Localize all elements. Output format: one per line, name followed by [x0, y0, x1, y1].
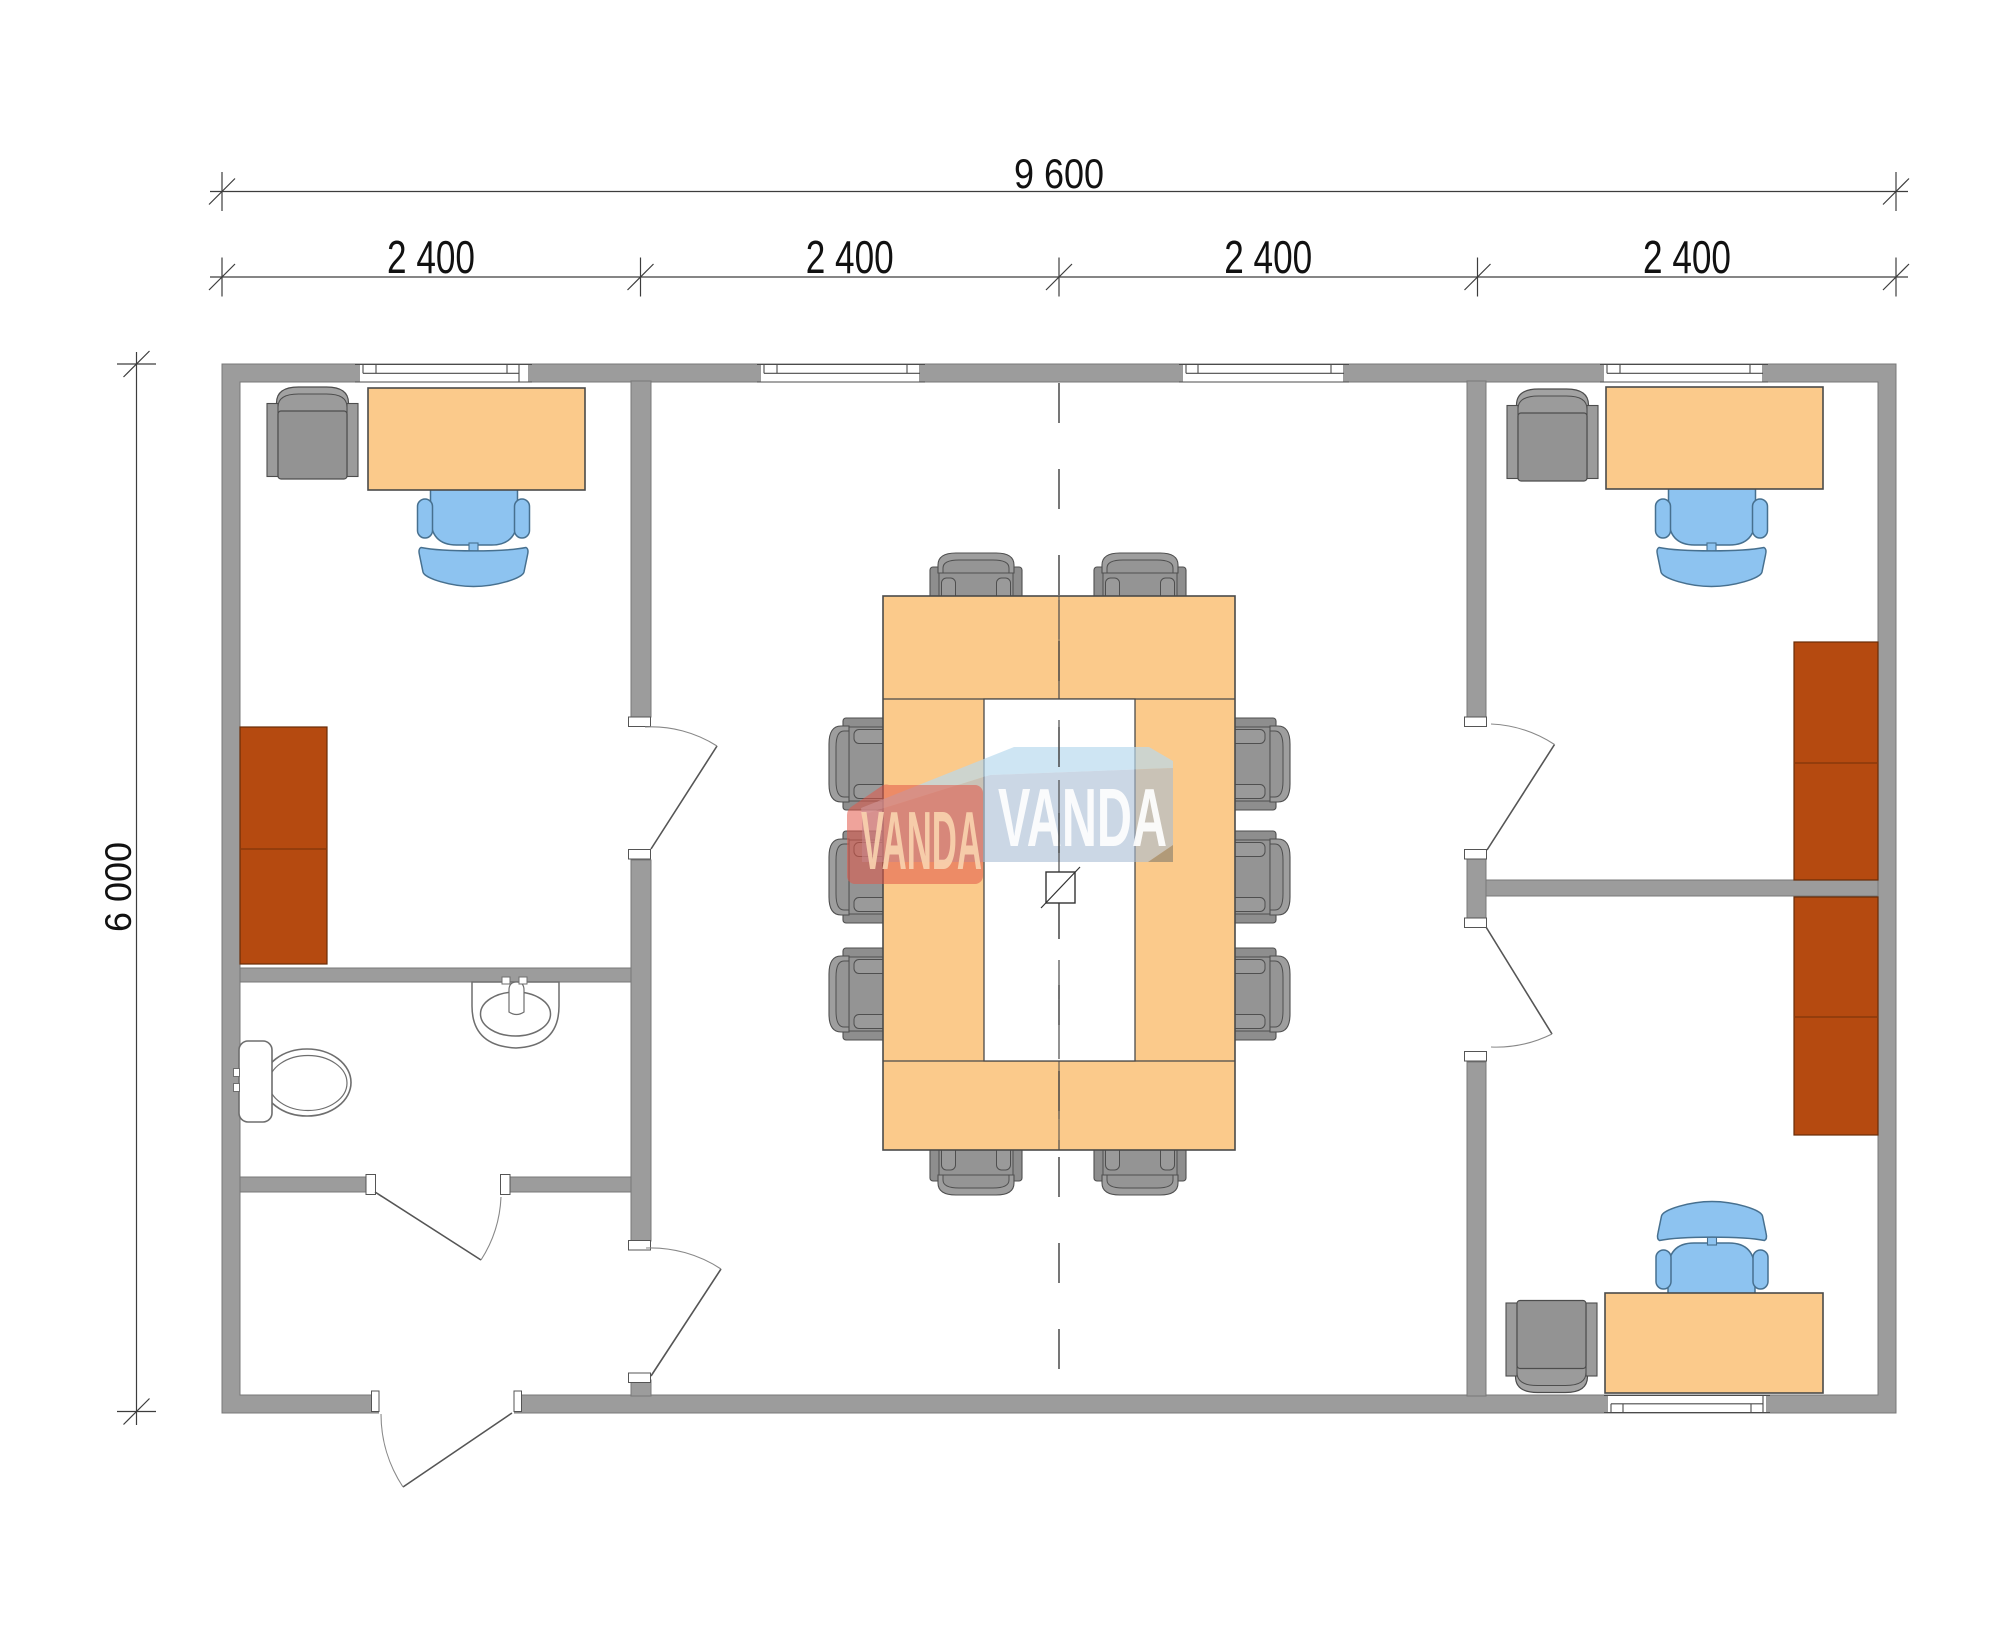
svg-text:2 400: 2 400 [1224, 231, 1312, 283]
svg-text:VANDA: VANDA [998, 771, 1167, 864]
svg-text:9 600: 9 600 [1014, 150, 1104, 197]
svg-text:VANDA: VANDA [861, 794, 982, 887]
svg-text:2 400: 2 400 [387, 231, 475, 283]
svg-text:2 400: 2 400 [806, 231, 894, 283]
svg-text:2 400: 2 400 [1643, 231, 1731, 283]
svg-text:6 000: 6 000 [98, 842, 139, 932]
